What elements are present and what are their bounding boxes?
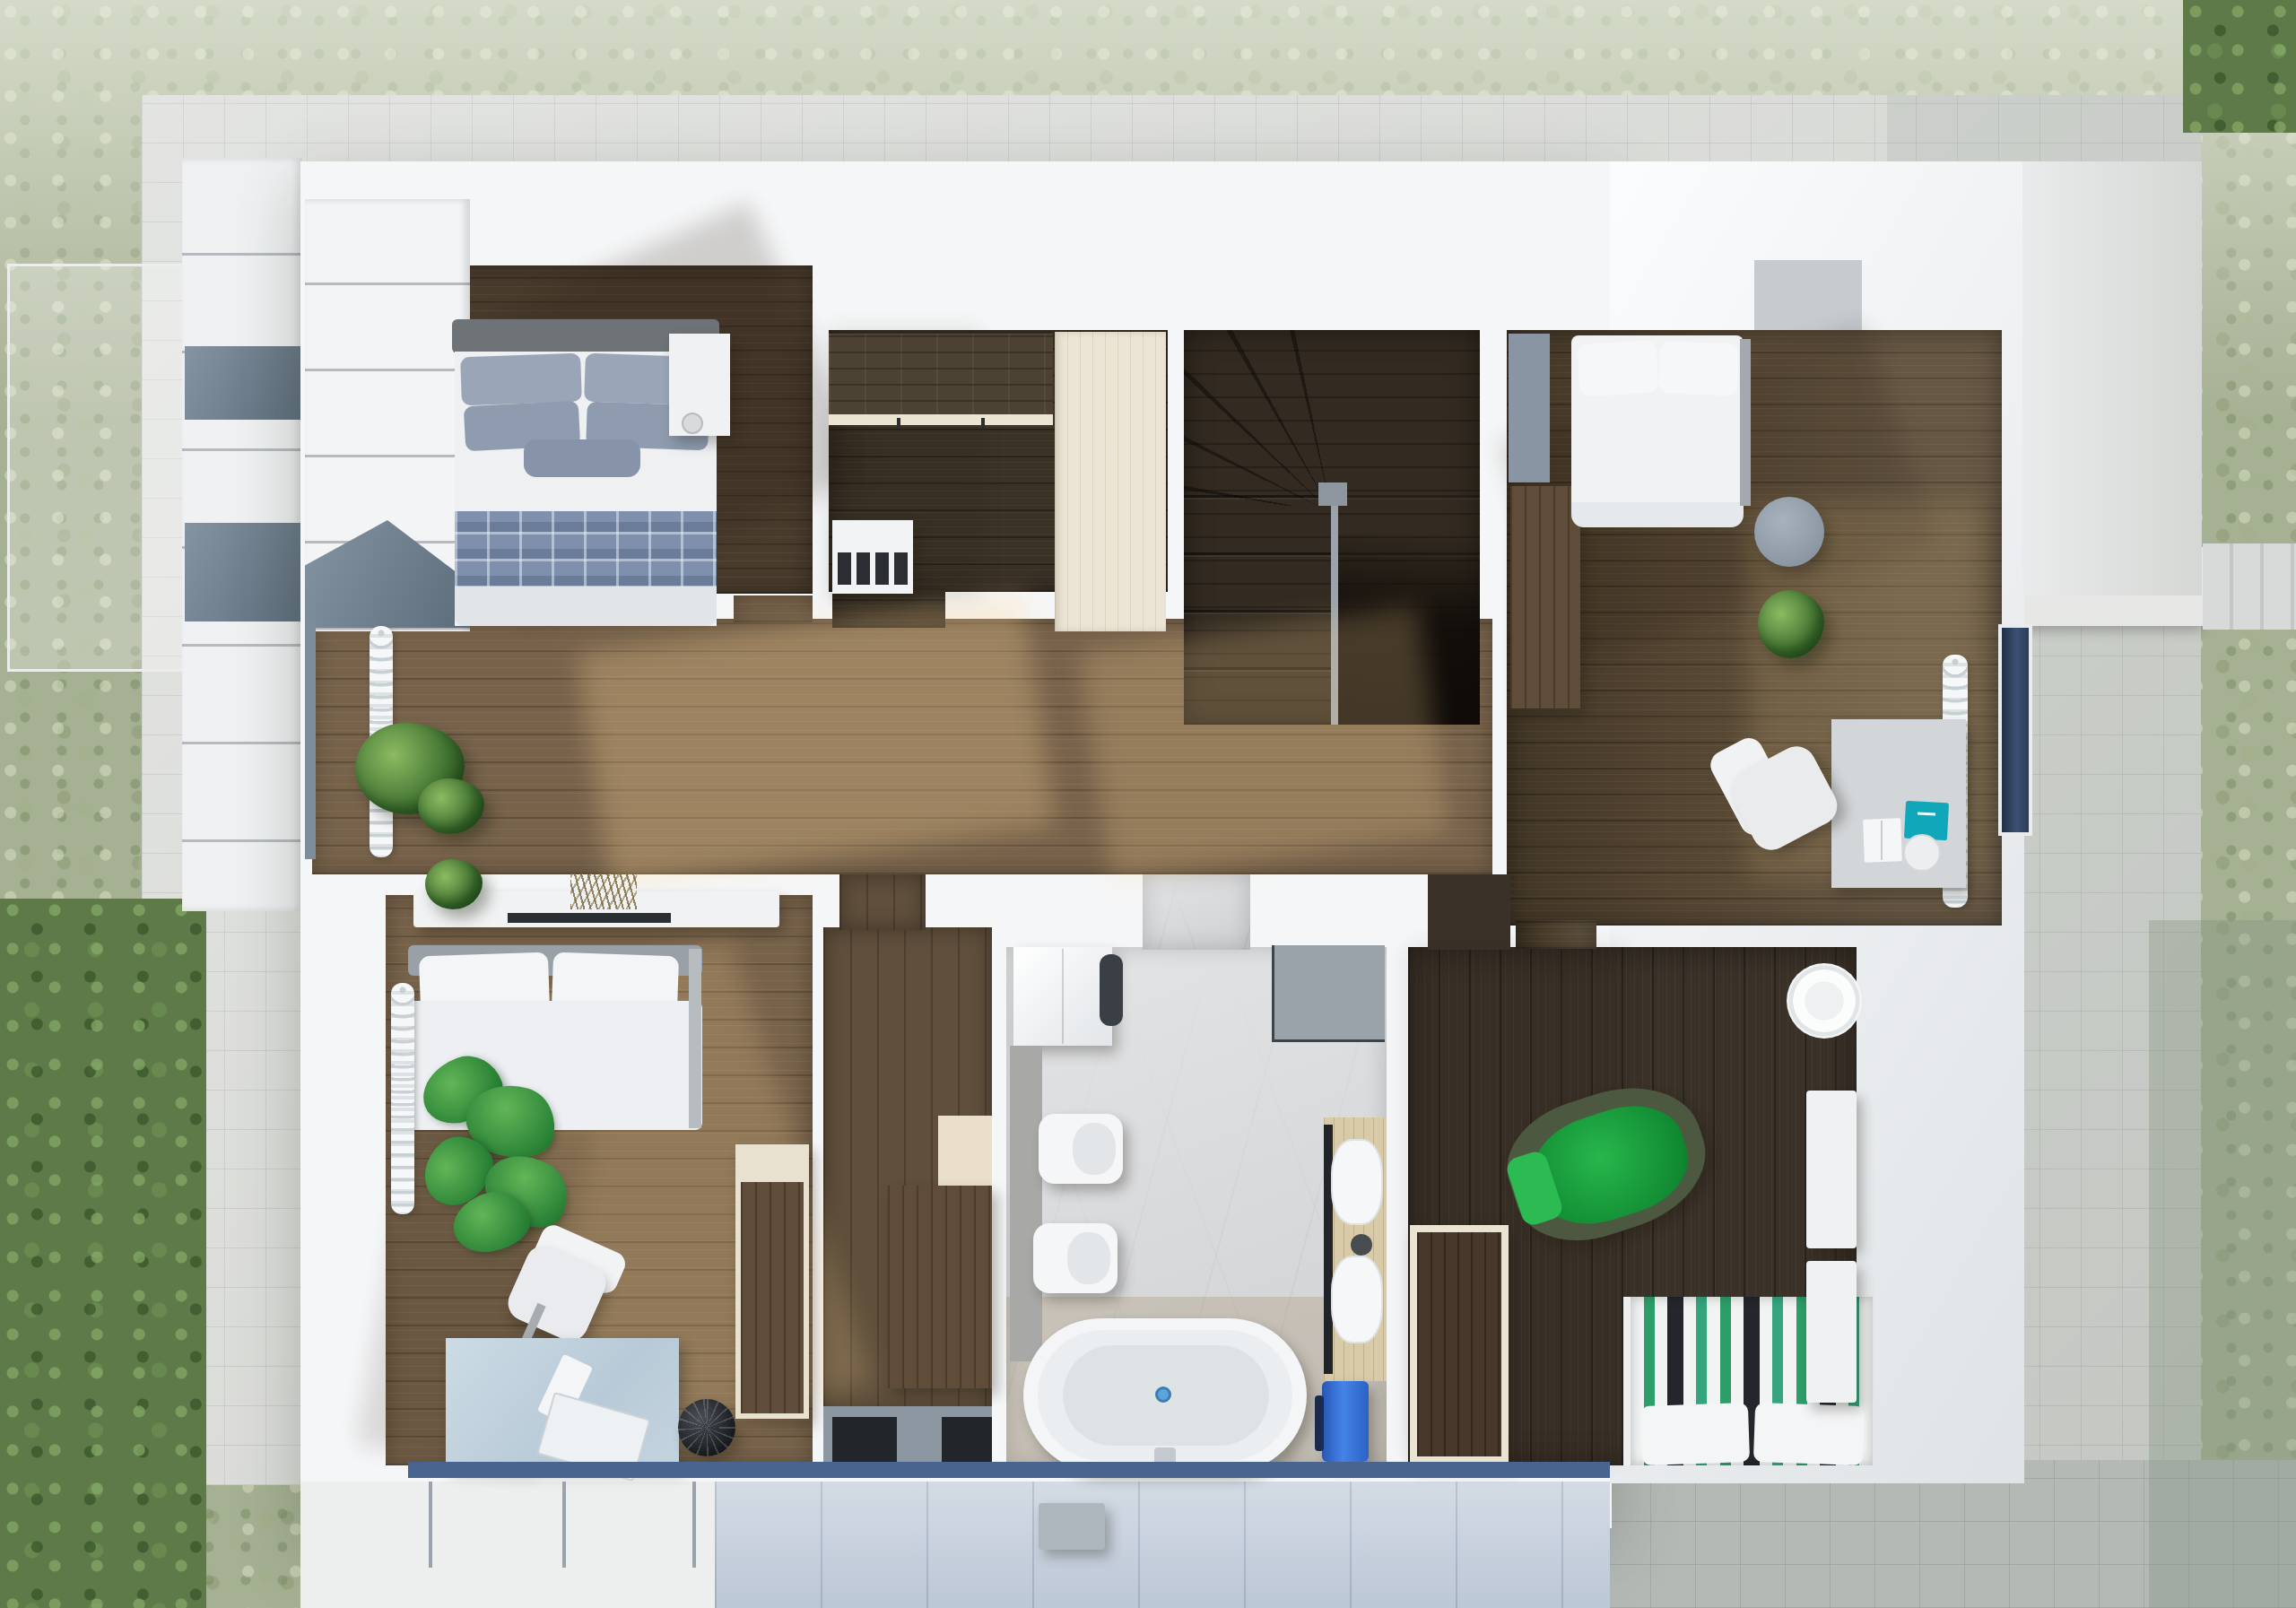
bed1-plaid-throw	[455, 511, 717, 588]
roof-eave-right	[2022, 161, 2202, 595]
hallway-terrace-door	[305, 621, 316, 859]
bed2-frame-edge	[1740, 339, 1751, 506]
lounge-wall-panel-upper	[1806, 1091, 1857, 1248]
stair-winder-treads	[1184, 330, 1480, 506]
bed1-pillow-back-left	[460, 353, 582, 406]
balcony-mullion-1	[429, 1482, 432, 1568]
closet-wardrobe-lip	[829, 414, 1053, 425]
laundry-bucket	[1322, 1381, 1369, 1462]
hallway-sunbeam-right	[1080, 605, 1449, 880]
balcony-mullion-2	[562, 1482, 566, 1568]
bidet-bowl	[1067, 1232, 1110, 1284]
closet-handle-right	[981, 418, 985, 429]
bed1-lumbar-pillow	[524, 439, 640, 477]
paving-bottom-right-moss	[2149, 920, 2296, 1608]
anteroom-cabinet-frame	[938, 1116, 992, 1191]
bed3-frame-edge	[689, 949, 701, 1128]
roof-skylight-upper	[185, 346, 301, 420]
daybed-pillow-right	[1753, 1403, 1865, 1465]
toilet-bowl	[1073, 1123, 1116, 1175]
bathroom-door-opening	[1143, 874, 1250, 950]
bed2-duvet-foot	[1571, 502, 1744, 527]
closet-wardrobe-cream	[1055, 332, 1166, 631]
hedge-top-right	[2183, 0, 2296, 133]
vanity-faucet-knob	[1351, 1234, 1372, 1256]
desk-open-book-spine	[1881, 821, 1883, 860]
hall-console-twigs	[570, 874, 637, 909]
lounge-wall-disc	[1787, 963, 1862, 1039]
bedroom3-garland-curtain	[391, 983, 414, 1214]
lounge-wall-panel-lower	[1806, 1261, 1857, 1403]
vanity-sink-upper	[1331, 1139, 1383, 1225]
terrace-blue-bottom	[715, 1482, 1610, 1608]
closet-handle-left	[897, 418, 900, 429]
balcony-mullion-3	[692, 1482, 696, 1568]
bathroom-shower-tray	[1272, 945, 1385, 1042]
laundry-bucket-handle	[1315, 1395, 1324, 1451]
terrace-white-bottom	[300, 1482, 715, 1608]
bedroom3-wire-pouf	[678, 1399, 735, 1456]
bed2-pillow-left	[1578, 341, 1659, 397]
closet-drawer-row	[838, 552, 908, 585]
anteroom-doormat-left	[832, 1417, 897, 1462]
hall-console-slot	[508, 913, 671, 923]
anteroom-cabinet-front	[888, 1186, 992, 1388]
stair-newel-cap	[1318, 482, 1347, 506]
hedge-bottom-left	[0, 899, 206, 1608]
garden-steps-right	[2203, 543, 2296, 630]
left-patio-frame	[7, 264, 210, 672]
terrace-outdoor-box	[1039, 1503, 1105, 1550]
desk-round-tray	[1903, 834, 1941, 872]
lounge-door-opening	[1428, 874, 1510, 950]
bedroom2-window	[1998, 624, 2032, 836]
bedroom2-side-table	[1754, 497, 1824, 567]
bedroom1-door-opening	[734, 595, 813, 622]
bathtub-drain	[1155, 1386, 1171, 1403]
bed2-pillow-right	[1658, 341, 1739, 395]
desk-open-book	[1863, 818, 1902, 862]
vanity-sink-lower	[1331, 1256, 1383, 1343]
bedroom2-dresser	[1510, 486, 1580, 708]
bathroom-cabinet-seam	[1062, 949, 1064, 1044]
closet-wardrobe-dark	[829, 334, 1053, 418]
bed1-sheet-foot	[455, 587, 717, 626]
bathroom-towel-rail	[1100, 954, 1123, 1026]
balcony-window-strip	[408, 1462, 1610, 1478]
bedroom2-tall-panel	[1509, 334, 1550, 482]
bed1-lamp	[682, 413, 703, 434]
bedroom2-door-opening	[1516, 920, 1596, 949]
bedroom3-wardrobe-front	[741, 1182, 804, 1413]
floor-plan-canvas	[0, 0, 2296, 1608]
anteroom-doormat-right	[942, 1417, 992, 1462]
anteroom-door-opening	[839, 874, 926, 930]
bathroom-wall-ledge	[1010, 1046, 1042, 1361]
daybed-pillow-left	[1640, 1403, 1750, 1465]
lounge-wardrobe-front	[1417, 1232, 1501, 1456]
roof-skylight-lower	[185, 523, 301, 621]
